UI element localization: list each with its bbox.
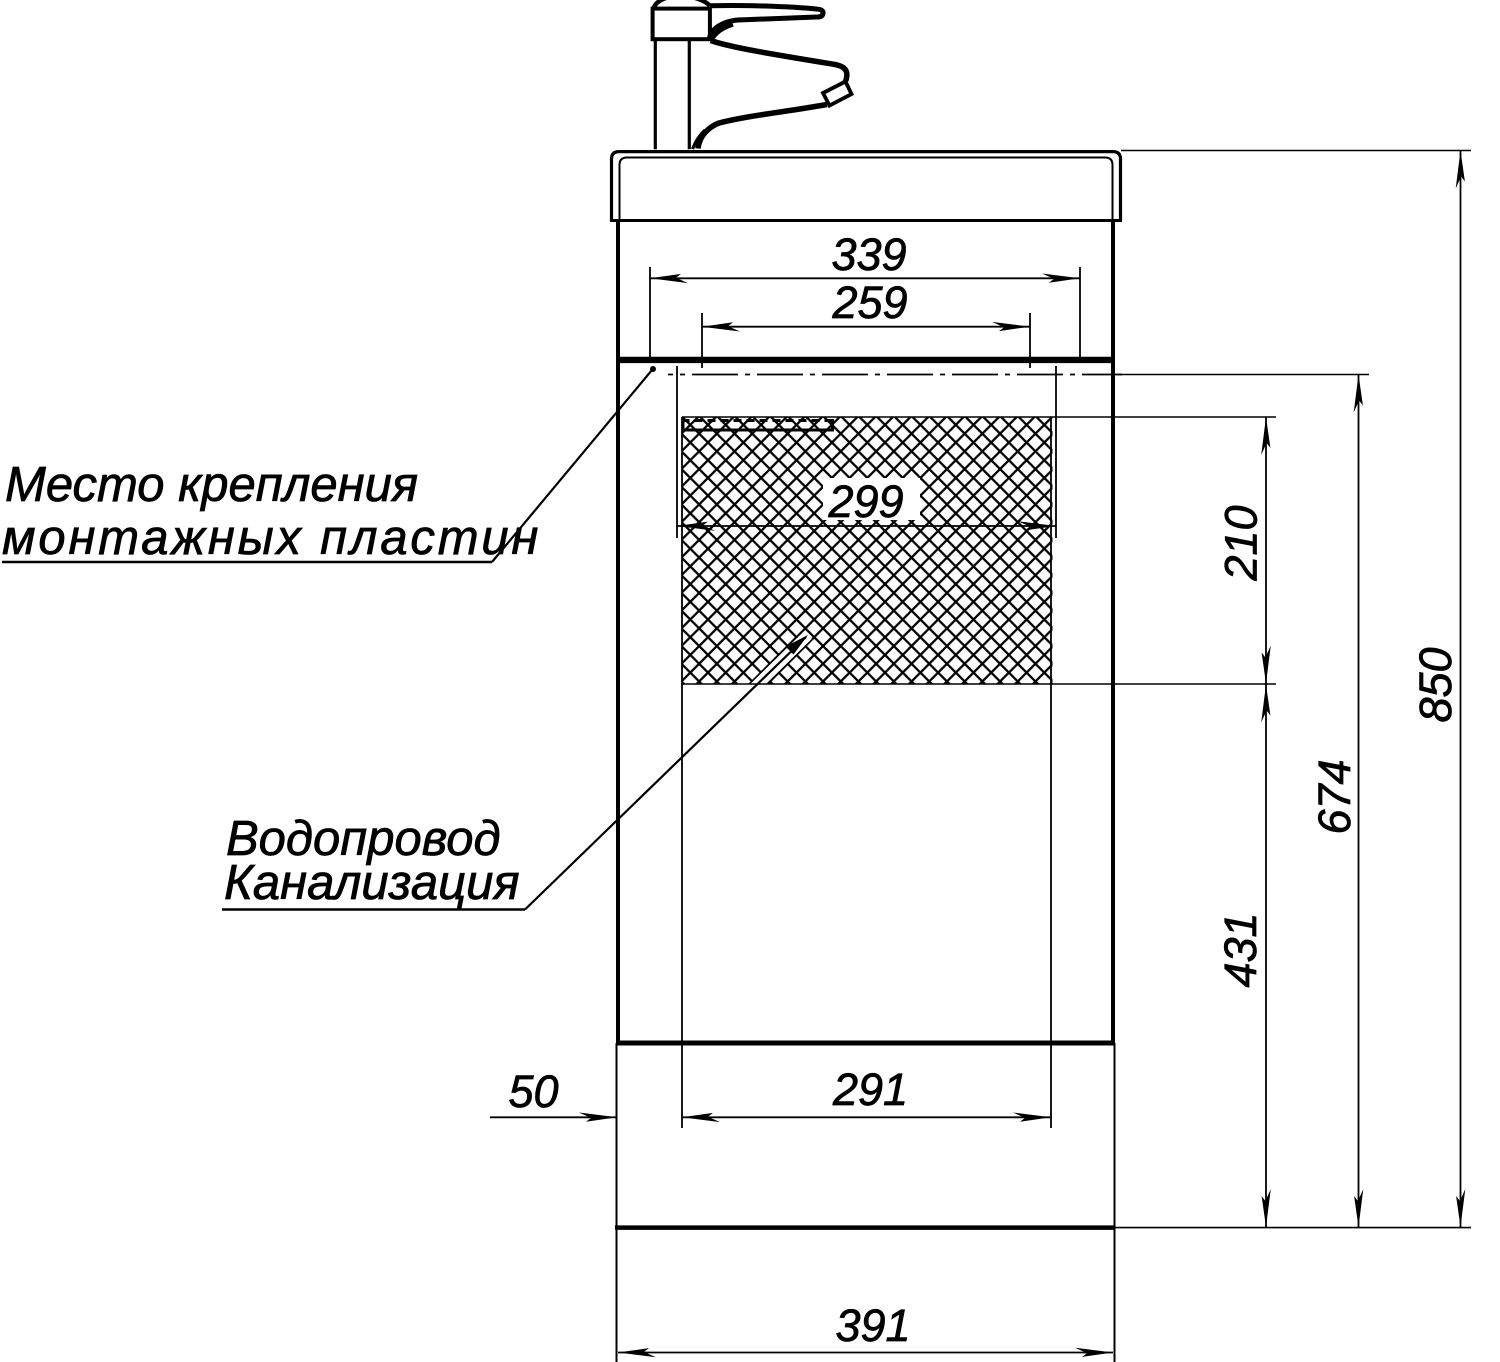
svg-text:431: 431 xyxy=(1215,912,1266,987)
svg-text:монтажных пластин: монтажных пластин xyxy=(2,511,541,565)
svg-text:50: 50 xyxy=(508,1066,558,1117)
svg-text:210: 210 xyxy=(1216,505,1267,581)
svg-text:850: 850 xyxy=(1410,647,1461,722)
svg-text:299: 299 xyxy=(827,476,903,527)
svg-text:259: 259 xyxy=(831,277,907,328)
svg-text:Место крепления: Место крепления xyxy=(5,458,418,512)
svg-text:339: 339 xyxy=(831,229,906,280)
svg-text:674: 674 xyxy=(1309,759,1360,834)
svg-text:Канализация: Канализация xyxy=(224,856,520,910)
svg-text:291: 291 xyxy=(832,1064,908,1115)
svg-text:391: 391 xyxy=(835,1300,910,1351)
